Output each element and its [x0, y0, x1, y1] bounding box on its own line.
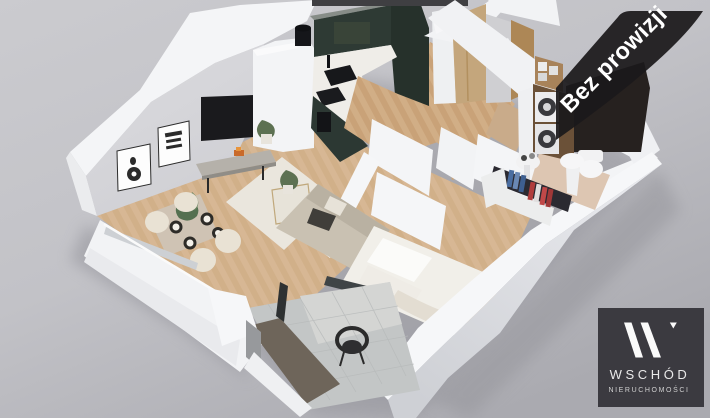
svg-text:NIERUCHOMOŚCI: NIERUCHOMOŚCI	[608, 385, 689, 394]
svg-text:WSCHÓD: WSCHÓD	[610, 367, 691, 382]
